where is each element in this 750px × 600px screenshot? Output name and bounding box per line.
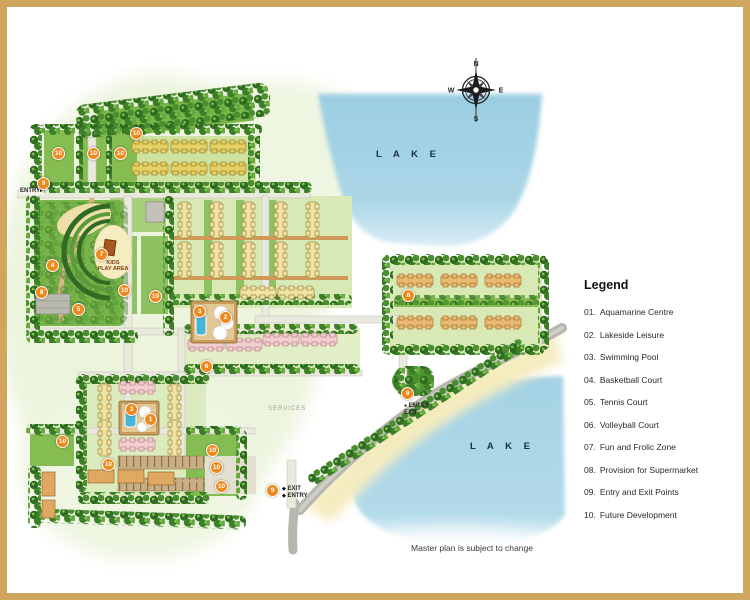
- legend-item: 03.Swimming Pool: [584, 352, 744, 362]
- compass-label-south: S: [474, 116, 479, 123]
- disclaimer-note: Master plan is subject to change: [372, 543, 572, 553]
- map-marker: 8: [35, 286, 48, 299]
- kids-play-area-label: KIDS PLAY AREA: [96, 261, 130, 272]
- services-label: SERVICES: [268, 406, 306, 412]
- map-marker: 9: [401, 387, 414, 400]
- map-marker: 3: [193, 305, 206, 318]
- legend-item: 07.Fun and Frolic Zone: [584, 442, 744, 452]
- lake-label-bottom: L A K E: [470, 441, 534, 452]
- map-marker: 2: [219, 311, 232, 324]
- map-marker: 10: [56, 435, 69, 448]
- map-marker: 9: [266, 484, 279, 497]
- map-marker: 10: [87, 147, 100, 160]
- map-marker: 9: [37, 177, 50, 190]
- legend-item: 04.Basketball Court: [584, 375, 744, 385]
- map-marker: 6: [200, 360, 213, 373]
- map-marker: 10: [215, 480, 228, 493]
- map-marker: 10: [210, 461, 223, 474]
- map-marker: 10: [114, 147, 127, 160]
- legend-title: Legend: [584, 278, 744, 292]
- legend-item: 10.Future Development: [584, 510, 744, 520]
- map-marker: 7: [95, 248, 108, 261]
- map-marker: 1: [144, 413, 157, 426]
- legend-item: 09.Entry and Exit Points: [584, 487, 744, 497]
- map-marker: 10: [118, 284, 131, 297]
- map-marker: 10: [52, 147, 65, 160]
- legend-item: 08.Provision for Supermarket: [584, 465, 744, 475]
- legend-item: 06.Volleyball Court: [584, 420, 744, 430]
- compass-label-east: E: [499, 88, 504, 95]
- legend: Legend 01.Aquamarine Centre 02.Lakeside …: [584, 278, 744, 532]
- exit-entry-label-bottom: ◆ EXIT ◆ ENTRY: [282, 486, 308, 499]
- entry-exit-label-mid: ● ENTRY EXIT: [404, 403, 429, 416]
- map-marker: 10: [206, 444, 219, 457]
- lake-label-top: L A K E: [376, 149, 440, 160]
- map-marker: 8: [402, 289, 415, 302]
- map-marker: 10: [102, 458, 115, 471]
- map-marker: 4: [46, 259, 59, 272]
- compass-label-north: N: [473, 61, 478, 68]
- legend-item: 02.Lakeside Leisure: [584, 330, 744, 340]
- masterplan-page: .bY{fill:#f0e3a6;stroke:#9d8c42;stroke-w…: [0, 0, 750, 600]
- legend-item: 01.Aquamarine Centre: [584, 307, 744, 317]
- map-marker: 3: [125, 403, 138, 416]
- legend-item: 05.Tennis Court: [584, 397, 744, 407]
- compass-label-west: W: [448, 88, 455, 95]
- map-marker: 10: [149, 290, 162, 303]
- map-marker: 10: [130, 127, 143, 140]
- map-marker: 5: [72, 303, 85, 316]
